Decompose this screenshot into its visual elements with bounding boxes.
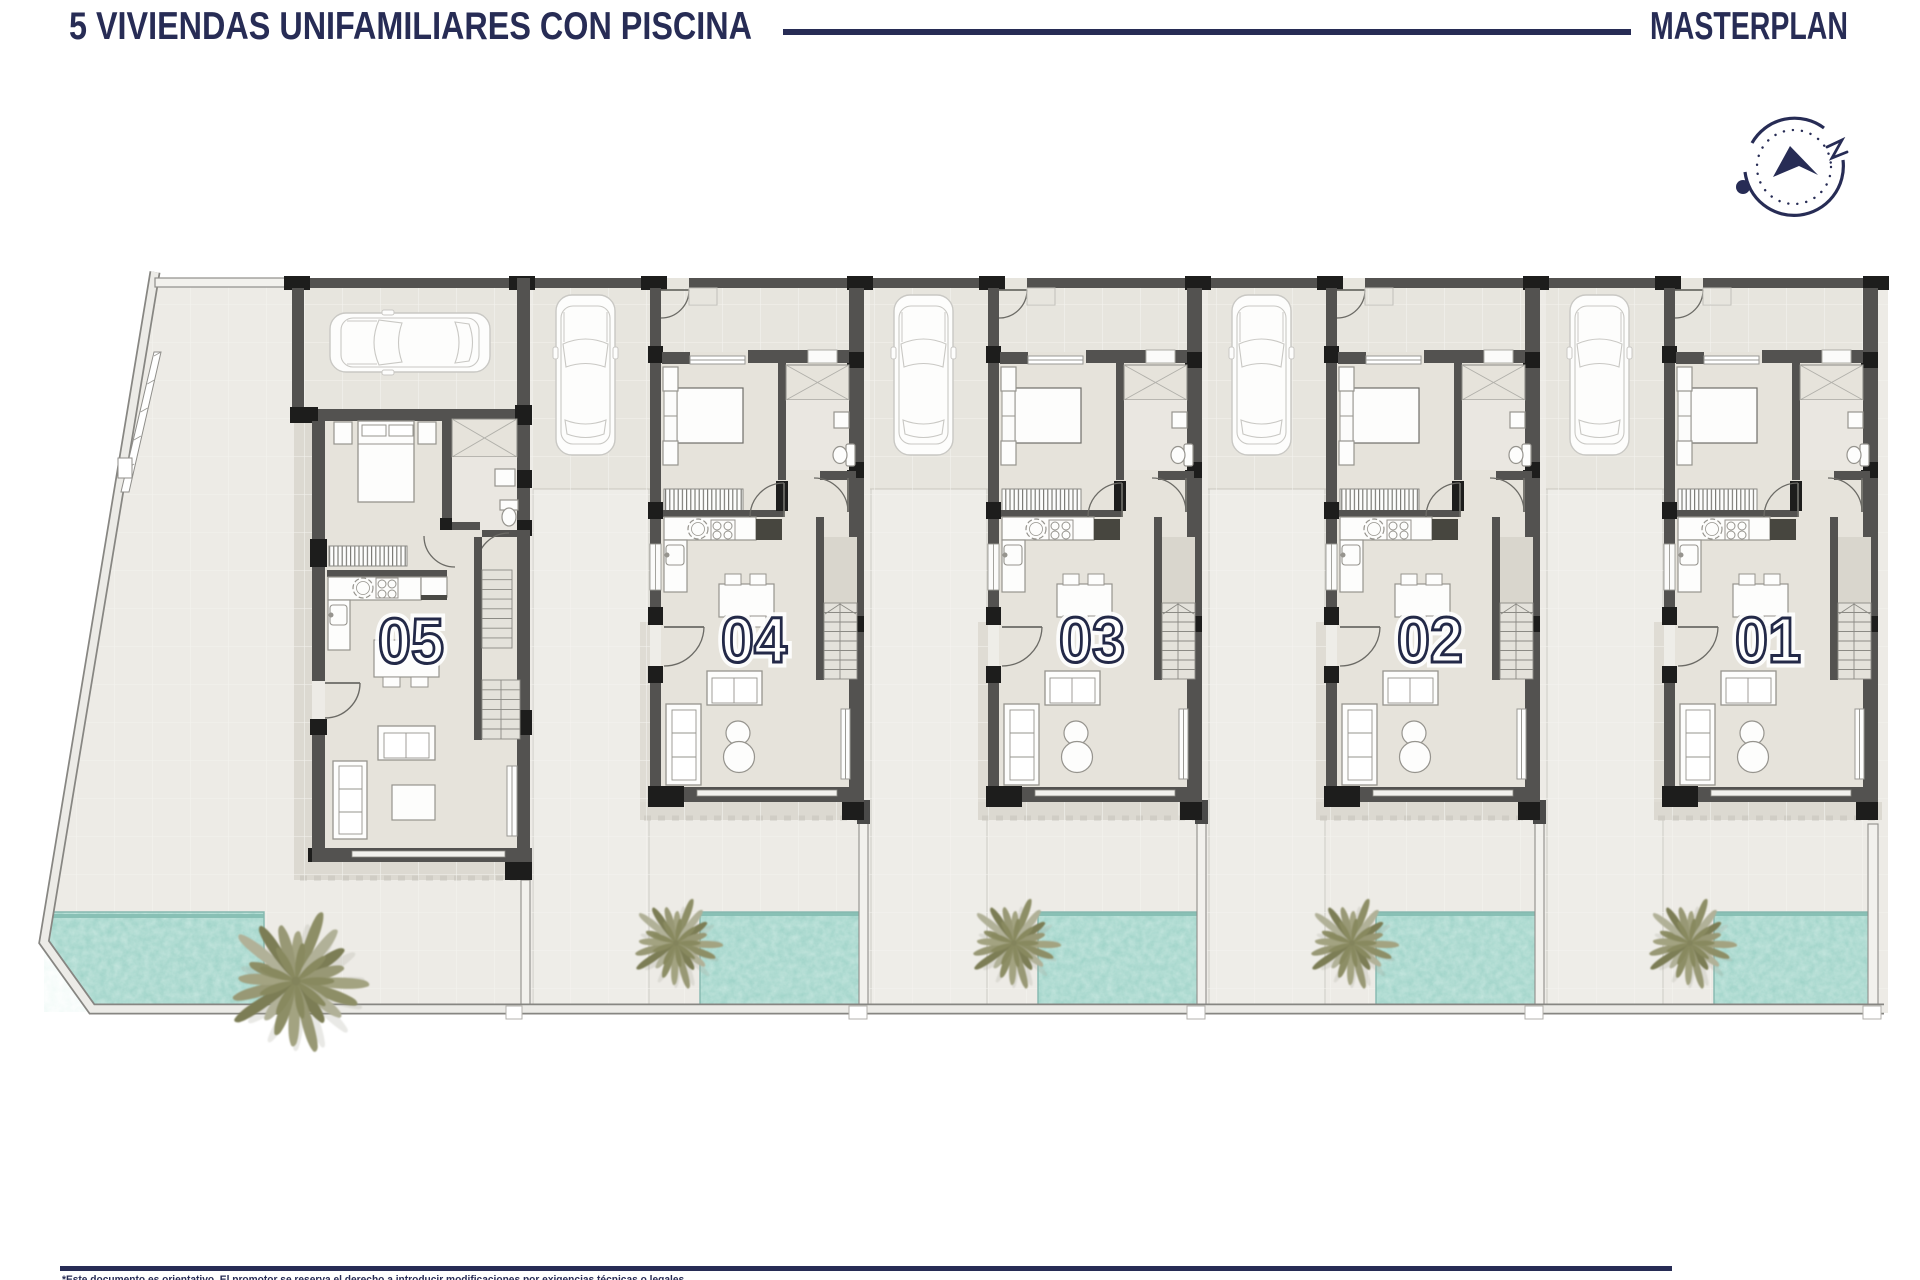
svg-text:05: 05	[378, 605, 444, 677]
svg-text:01: 01	[1735, 604, 1801, 676]
svg-text:MASTERPLAN: MASTERPLAN	[1650, 5, 1848, 48]
svg-text:03: 03	[1059, 604, 1125, 676]
svg-text:04: 04	[721, 604, 787, 676]
svg-text:5 VIVIENDAS UNIFAMILIARES CON: 5 VIVIENDAS UNIFAMILIARES CON PISCINA	[69, 5, 752, 48]
svg-text:02: 02	[1397, 604, 1463, 676]
svg-text:*Este documento es orientativo: *Este documento es orientativo. El promo…	[62, 1274, 687, 1280]
